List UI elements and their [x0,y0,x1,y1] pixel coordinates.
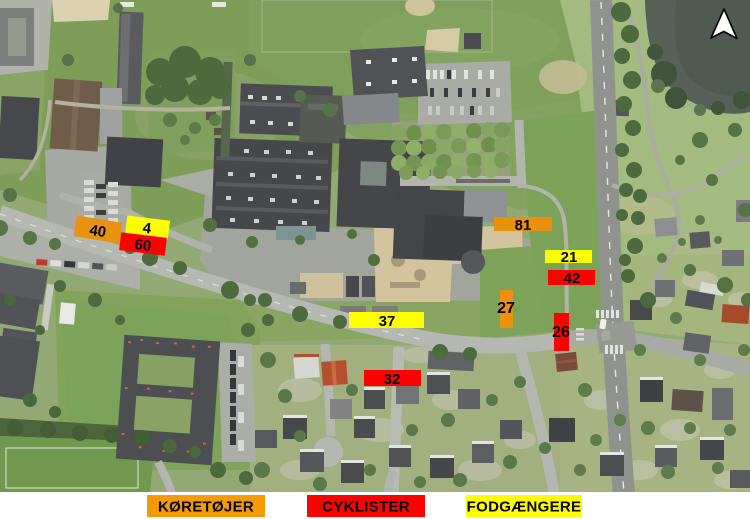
svg-text:81: 81 [515,217,532,234]
svg-text:40: 40 [88,222,107,241]
svg-text:60: 60 [133,236,152,255]
svg-text:42: 42 [564,270,581,287]
svg-text:CYKLISTER: CYKLISTER [322,499,410,516]
svg-text:21: 21 [561,249,578,266]
svg-text:FODGÆNGERE: FODGÆNGERE [467,499,582,516]
svg-text:27: 27 [497,300,515,317]
svg-text:37: 37 [379,313,396,330]
svg-text:32: 32 [384,371,401,388]
svg-text:26: 26 [552,324,570,341]
svg-text:KØRETØJER: KØRETØJER [158,499,254,516]
